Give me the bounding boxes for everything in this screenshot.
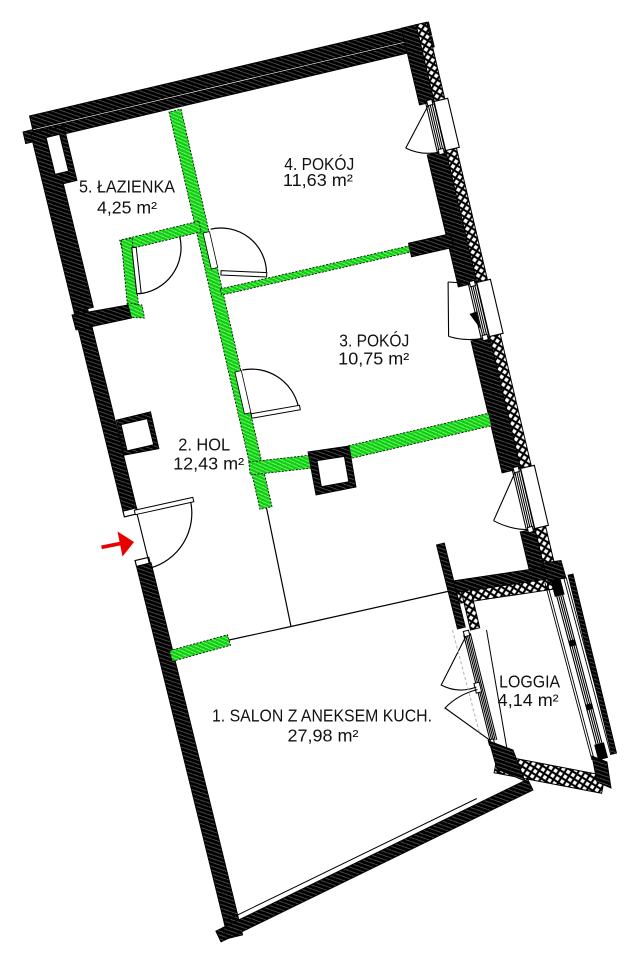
svg-text:12,43 m²: 12,43 m² <box>173 454 244 474</box>
svg-text:10,75 m²: 10,75 m² <box>338 349 409 369</box>
svg-text:5. ŁAZIENKA: 5. ŁAZIENKA <box>79 177 175 197</box>
svg-text:4,25 m²: 4,25 m² <box>97 197 157 217</box>
svg-text:2. HOL: 2. HOL <box>178 435 230 455</box>
svg-text:27,98 m²: 27,98 m² <box>288 726 359 746</box>
svg-text:11,63 m²: 11,63 m² <box>283 170 353 190</box>
svg-text:1. SALON Z ANEKSEM KUCH.: 1. SALON Z ANEKSEM KUCH. <box>212 706 432 726</box>
svg-text:LOGGIA: LOGGIA <box>499 671 560 691</box>
svg-text:4,14 m²: 4,14 m² <box>498 690 559 710</box>
